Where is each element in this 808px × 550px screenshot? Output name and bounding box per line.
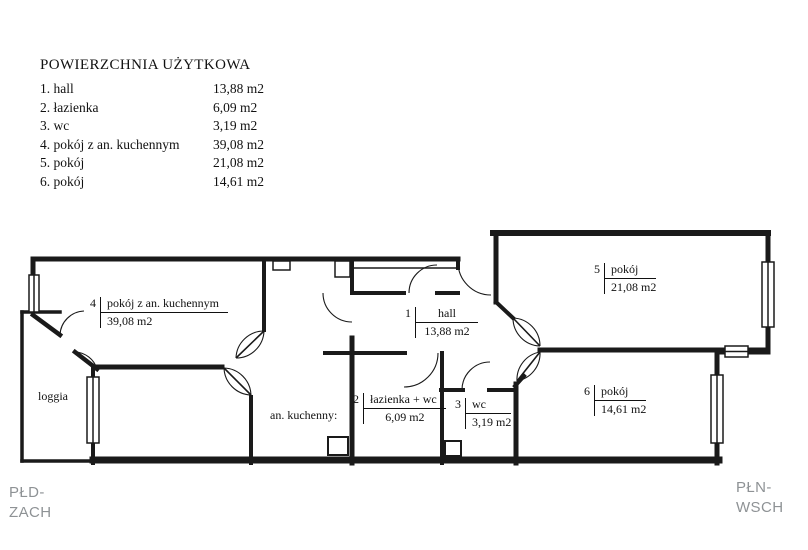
window-loggia-room4 bbox=[87, 377, 99, 443]
door-room5-double bbox=[513, 318, 540, 346]
room-number: 3 bbox=[455, 398, 466, 429]
door-room2-arc bbox=[404, 353, 438, 387]
room-area: 13,88 m2 bbox=[416, 323, 478, 338]
legend-room-name: 4. pokój z an. kuchennym bbox=[40, 136, 213, 155]
loggia-label: loggia bbox=[38, 390, 68, 403]
room-number: 5 bbox=[594, 263, 605, 294]
legend-row: 2. łazienka 6,09 m2 bbox=[40, 99, 264, 118]
legend-room-area: 39,08 m2 bbox=[213, 136, 264, 155]
floor-plan-page: POWIERZCHNIA UŻYTKOWA 1. hall 13,88 m2 2… bbox=[0, 0, 808, 550]
door-room4-double bbox=[236, 331, 264, 358]
room-area: 21,08 m2 bbox=[605, 279, 656, 294]
legend: POWIERZCHNIA UŻYTKOWA 1. hall 13,88 m2 2… bbox=[40, 55, 264, 192]
legend-room-name: 2. łazienka bbox=[40, 99, 213, 118]
room-name: pokój bbox=[595, 385, 646, 401]
wall-notch-2 bbox=[335, 261, 350, 277]
room-label-2: 2 łazienka + wc 6,09 m2 bbox=[353, 393, 446, 424]
legend-row: 4. pokój z an. kuchennym 39,08 m2 bbox=[40, 136, 264, 155]
room-label-6: 6 pokój 14,61 m2 bbox=[584, 385, 646, 416]
legend-room-area: 3,19 m2 bbox=[213, 117, 264, 136]
duct-shaft-wc bbox=[445, 441, 461, 456]
room-area: 6,09 m2 bbox=[364, 409, 446, 424]
legend-room-name: 3. wc bbox=[40, 117, 213, 136]
kitchenette-label: an. kuchenny: bbox=[270, 409, 337, 422]
door-entrance-arc bbox=[458, 262, 491, 295]
legend-room-name: 1. hall bbox=[40, 80, 213, 99]
legend-row: 1. hall 13,88 m2 bbox=[40, 80, 264, 99]
room-label-4: 4 pokój z an. kuchennym 39,08 m2 bbox=[90, 297, 228, 328]
legend-room-area: 6,09 m2 bbox=[213, 99, 264, 118]
room-label-3: 3 wc 3,19 m2 bbox=[455, 398, 511, 429]
door-closet-arc bbox=[409, 265, 437, 293]
legend-row: 6. pokój 14,61 m2 bbox=[40, 173, 264, 192]
legend-room-area: 13,88 m2 bbox=[213, 80, 264, 99]
room-area: 39,08 m2 bbox=[101, 313, 228, 328]
window-left-wall bbox=[29, 275, 39, 312]
door-loggia-arc-1 bbox=[60, 311, 84, 335]
legend-row: 5. pokój 21,08 m2 bbox=[40, 154, 264, 173]
compass-ne-line1: PŁN- bbox=[736, 478, 783, 498]
wall-room5-chamfer bbox=[496, 302, 513, 318]
door-room6-double bbox=[517, 352, 540, 381]
room-name: pokój bbox=[605, 263, 656, 279]
door-kitchenette-double bbox=[224, 368, 251, 395]
room-number: 6 bbox=[584, 385, 595, 416]
compass-sw-line1: PŁD- bbox=[9, 483, 51, 503]
compass-southwest: PŁD- ZACH bbox=[9, 483, 51, 523]
legend-room-area: 21,08 m2 bbox=[213, 154, 264, 173]
legend-room-name: 5. pokój bbox=[40, 154, 213, 173]
legend-title: POWIERZCHNIA UŻYTKOWA bbox=[40, 55, 264, 75]
windows bbox=[29, 261, 774, 456]
wall-chamfer-loggia bbox=[33, 315, 60, 335]
window-step bbox=[725, 346, 748, 357]
room-label-1: 1 hall 13,88 m2 bbox=[405, 307, 478, 338]
room-name: wc bbox=[466, 398, 511, 414]
room-area: 3,19 m2 bbox=[466, 414, 511, 429]
wall-notch-1 bbox=[273, 261, 290, 270]
window-room6-right bbox=[711, 375, 723, 443]
compass-sw-line2: ZACH bbox=[9, 503, 51, 523]
room-name: łazienka + wc bbox=[364, 393, 446, 409]
legend-room-name: 6. pokój bbox=[40, 173, 213, 192]
window-room5-right bbox=[762, 262, 774, 327]
room-area: 14,61 m2 bbox=[595, 401, 646, 416]
compass-ne-line2: WSCH bbox=[736, 498, 783, 518]
room-name: hall bbox=[416, 307, 478, 323]
compass-northeast: PŁN- WSCH bbox=[736, 478, 783, 518]
door-corridor-hall-arc bbox=[323, 293, 352, 322]
room-number: 2 bbox=[353, 393, 364, 424]
door-wc-arc bbox=[462, 362, 490, 390]
room-number: 1 bbox=[405, 307, 416, 338]
legend-row: 3. wc 3,19 m2 bbox=[40, 117, 264, 136]
room-label-5: 5 pokój 21,08 m2 bbox=[594, 263, 656, 294]
legend-room-area: 14,61 m2 bbox=[213, 173, 264, 192]
duct-shaft-kitchenette bbox=[328, 437, 348, 455]
room-number: 4 bbox=[90, 297, 101, 328]
room-name: pokój z an. kuchennym bbox=[101, 297, 228, 313]
